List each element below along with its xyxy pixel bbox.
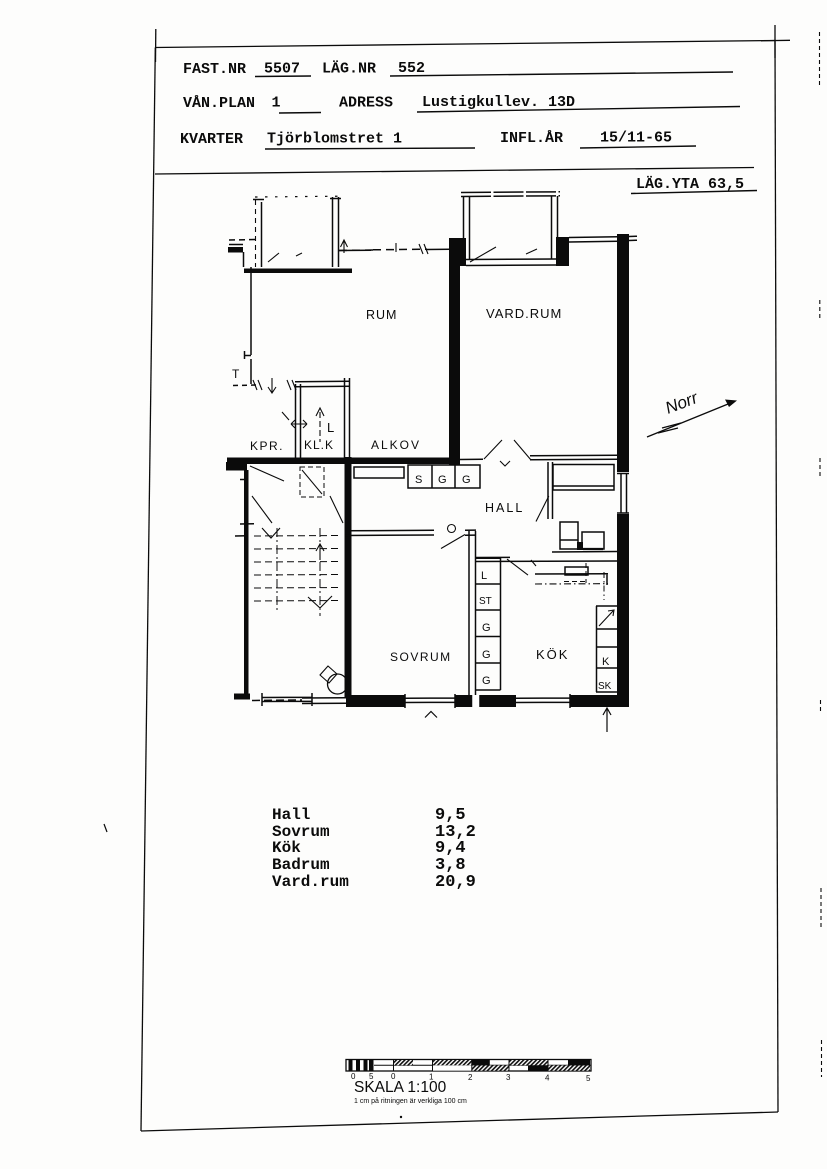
svg-text:5: 5 [586,1074,591,1083]
svg-text:Hall: Hall [272,806,310,824]
svg-text:HALL: HALL [485,501,524,515]
svg-text:ALKOV: ALKOV [371,438,421,452]
svg-text:15/11-65: 15/11-65 [600,130,672,147]
svg-text:T: T [232,367,240,381]
svg-text:SKALA 1:100: SKALA 1:100 [354,1079,447,1096]
svg-text:552: 552 [398,60,425,77]
svg-text:Vard.rum: Vard.rum [272,873,349,891]
svg-text:VÅN.PLAN: VÅN.PLAN [183,95,255,112]
svg-text:20,9: 20,9 [435,873,476,892]
svg-text:K: K [602,656,610,668]
svg-text:RUM: RUM [366,308,397,322]
svg-text:SOVRUM: SOVRUM [390,650,452,664]
svg-text:5507: 5507 [264,61,300,78]
svg-text:Tjörblomstret 1: Tjörblomstret 1 [267,131,402,148]
svg-text:3: 3 [506,1073,511,1082]
svg-text:Lustigkullev. 13D: Lustigkullev. 13D [422,94,575,111]
svg-text:G: G [462,474,471,486]
svg-text:KPR.: KPR. [250,439,284,453]
svg-text:Badrum: Badrum [272,856,330,874]
svg-text:G: G [438,474,447,486]
svg-text:Kök: Kök [272,839,301,857]
svg-text:SK: SK [598,681,612,692]
svg-text:KL.K: KL.K [304,438,334,452]
svg-text:KVARTER: KVARTER [180,131,243,148]
svg-text:FAST.NR: FAST.NR [183,61,246,78]
svg-text:LÄG.NR: LÄG.NR [322,61,376,78]
svg-text:Norr: Norr [663,388,702,418]
svg-text:LÄG.YTA 63,5: LÄG.YTA 63,5 [636,176,744,193]
svg-text:4: 4 [545,1074,550,1083]
svg-text:L: L [327,420,334,435]
svg-text:G: G [482,622,491,634]
svg-text:ST: ST [479,596,492,607]
svg-text:INFL.ÅR: INFL.ÅR [500,130,563,147]
svg-text:ADRESS: ADRESS [339,95,393,112]
svg-text:L: L [481,570,487,582]
svg-text:2: 2 [468,1073,473,1082]
svg-text:S: S [415,474,422,486]
svg-text:G: G [482,649,491,661]
svg-text:1 cm på ritningen är verkliga: 1 cm på ritningen är verkliga 100 cm [354,1097,467,1105]
svg-text:G: G [482,675,491,687]
svg-text:1: 1 [272,95,281,112]
svg-text:VARD.RUM: VARD.RUM [486,306,562,321]
svg-text:KÖK: KÖK [536,647,569,662]
